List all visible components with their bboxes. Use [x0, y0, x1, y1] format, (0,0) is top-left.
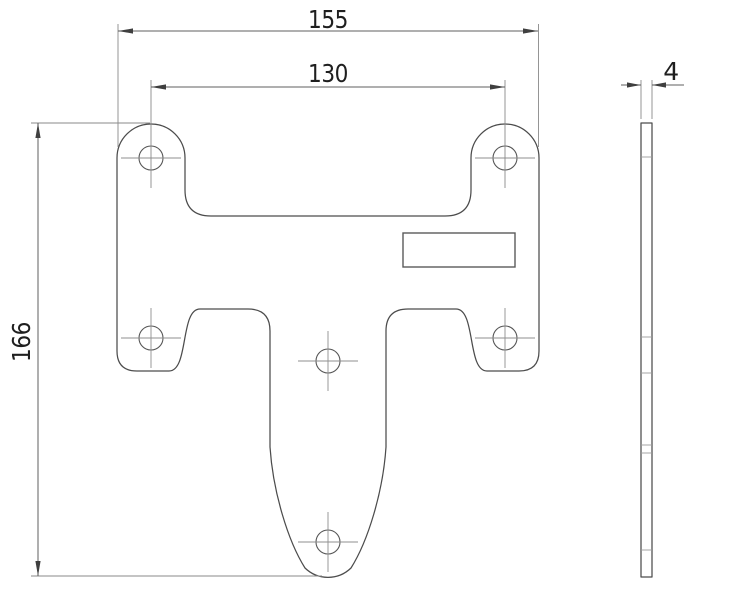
dimension-value-4: 4	[663, 57, 678, 86]
dimension-thickness: 4	[621, 57, 684, 119]
hole-mid-left	[121, 308, 181, 368]
hole-center	[298, 331, 358, 391]
arrowhead-top	[35, 123, 40, 138]
hole-mid-right	[475, 308, 535, 368]
arrowhead-left	[151, 84, 166, 89]
dimension-value-155: 155	[308, 5, 348, 34]
arrowhead-right	[490, 84, 505, 89]
arrowhead-right	[523, 28, 538, 33]
arrowhead-left	[627, 82, 641, 87]
side-profile	[641, 123, 652, 577]
arrowhead-left	[118, 28, 133, 33]
side-view	[641, 123, 652, 577]
dimension-value-130: 130	[308, 59, 348, 88]
drawing-canvas: 155 130 166 4	[0, 0, 737, 600]
hole-bottom	[298, 512, 358, 572]
dimension-overall-height: 166	[7, 123, 322, 576]
label-recess	[403, 233, 515, 267]
front-view	[117, 124, 539, 577]
dimension-hole-spacing: 130	[151, 59, 505, 188]
technical-drawing: 155 130 166 4	[0, 0, 737, 600]
dimension-value-166: 166	[7, 322, 36, 362]
arrowhead-bottom	[35, 561, 40, 576]
